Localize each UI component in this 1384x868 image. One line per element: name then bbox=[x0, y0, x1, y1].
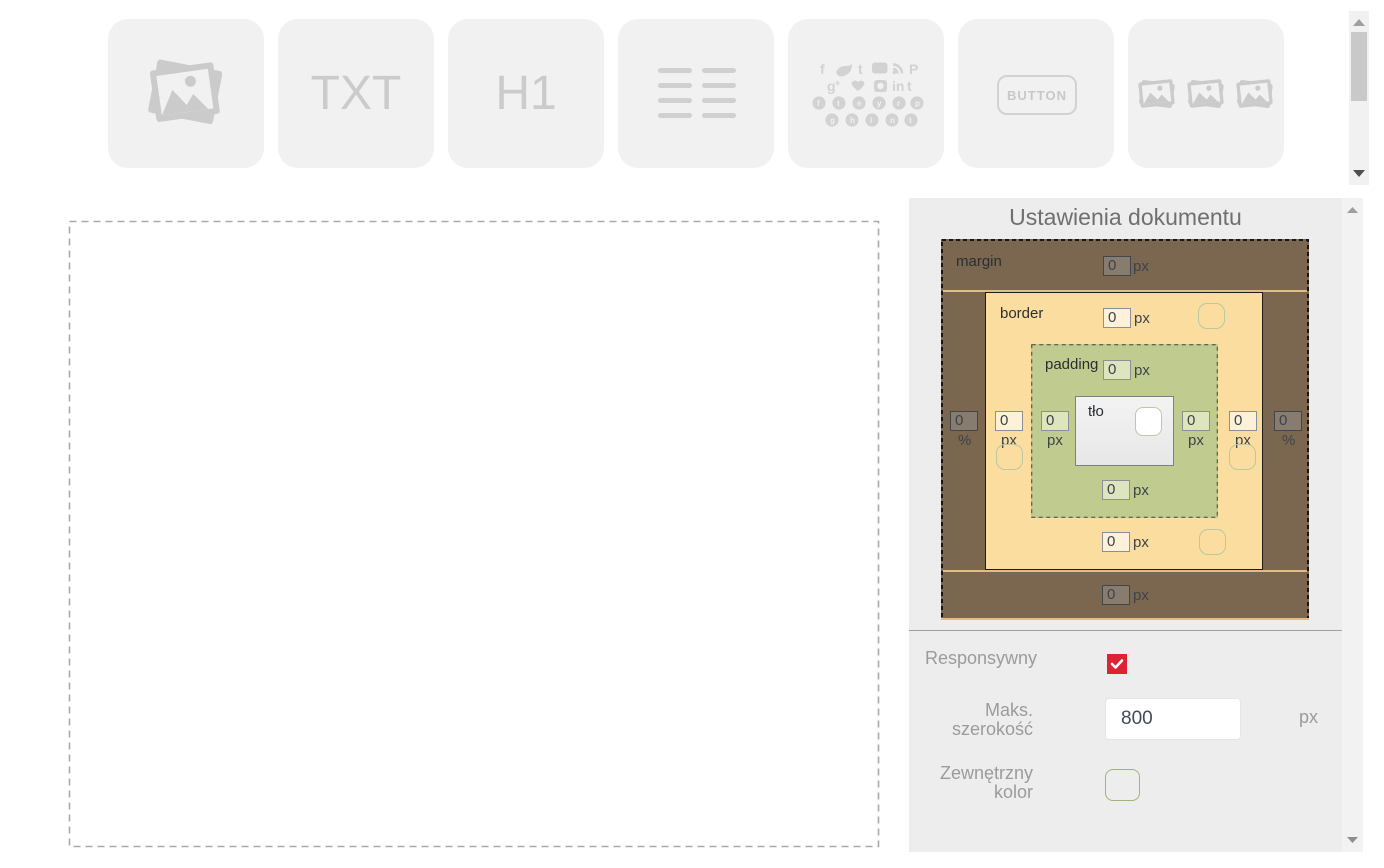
svg-text:P: P bbox=[909, 61, 918, 77]
svg-text:t: t bbox=[837, 99, 840, 108]
svg-text:t: t bbox=[907, 78, 912, 94]
svg-text:f: f bbox=[817, 99, 820, 108]
svg-text:h: h bbox=[850, 116, 855, 125]
svg-text:n: n bbox=[890, 116, 895, 125]
svg-text:t: t bbox=[909, 116, 912, 125]
svg-text:t: t bbox=[858, 61, 863, 77]
svg-text:g: g bbox=[830, 116, 835, 125]
svg-text:r: r bbox=[897, 99, 900, 108]
svg-text:+: + bbox=[835, 78, 840, 88]
svg-text:in: in bbox=[892, 78, 904, 94]
svg-text:y: y bbox=[877, 99, 882, 108]
svg-text:i: i bbox=[870, 116, 872, 125]
svg-text:p: p bbox=[915, 99, 920, 108]
svg-text:f: f bbox=[820, 61, 825, 77]
svg-text:e: e bbox=[857, 99, 862, 108]
